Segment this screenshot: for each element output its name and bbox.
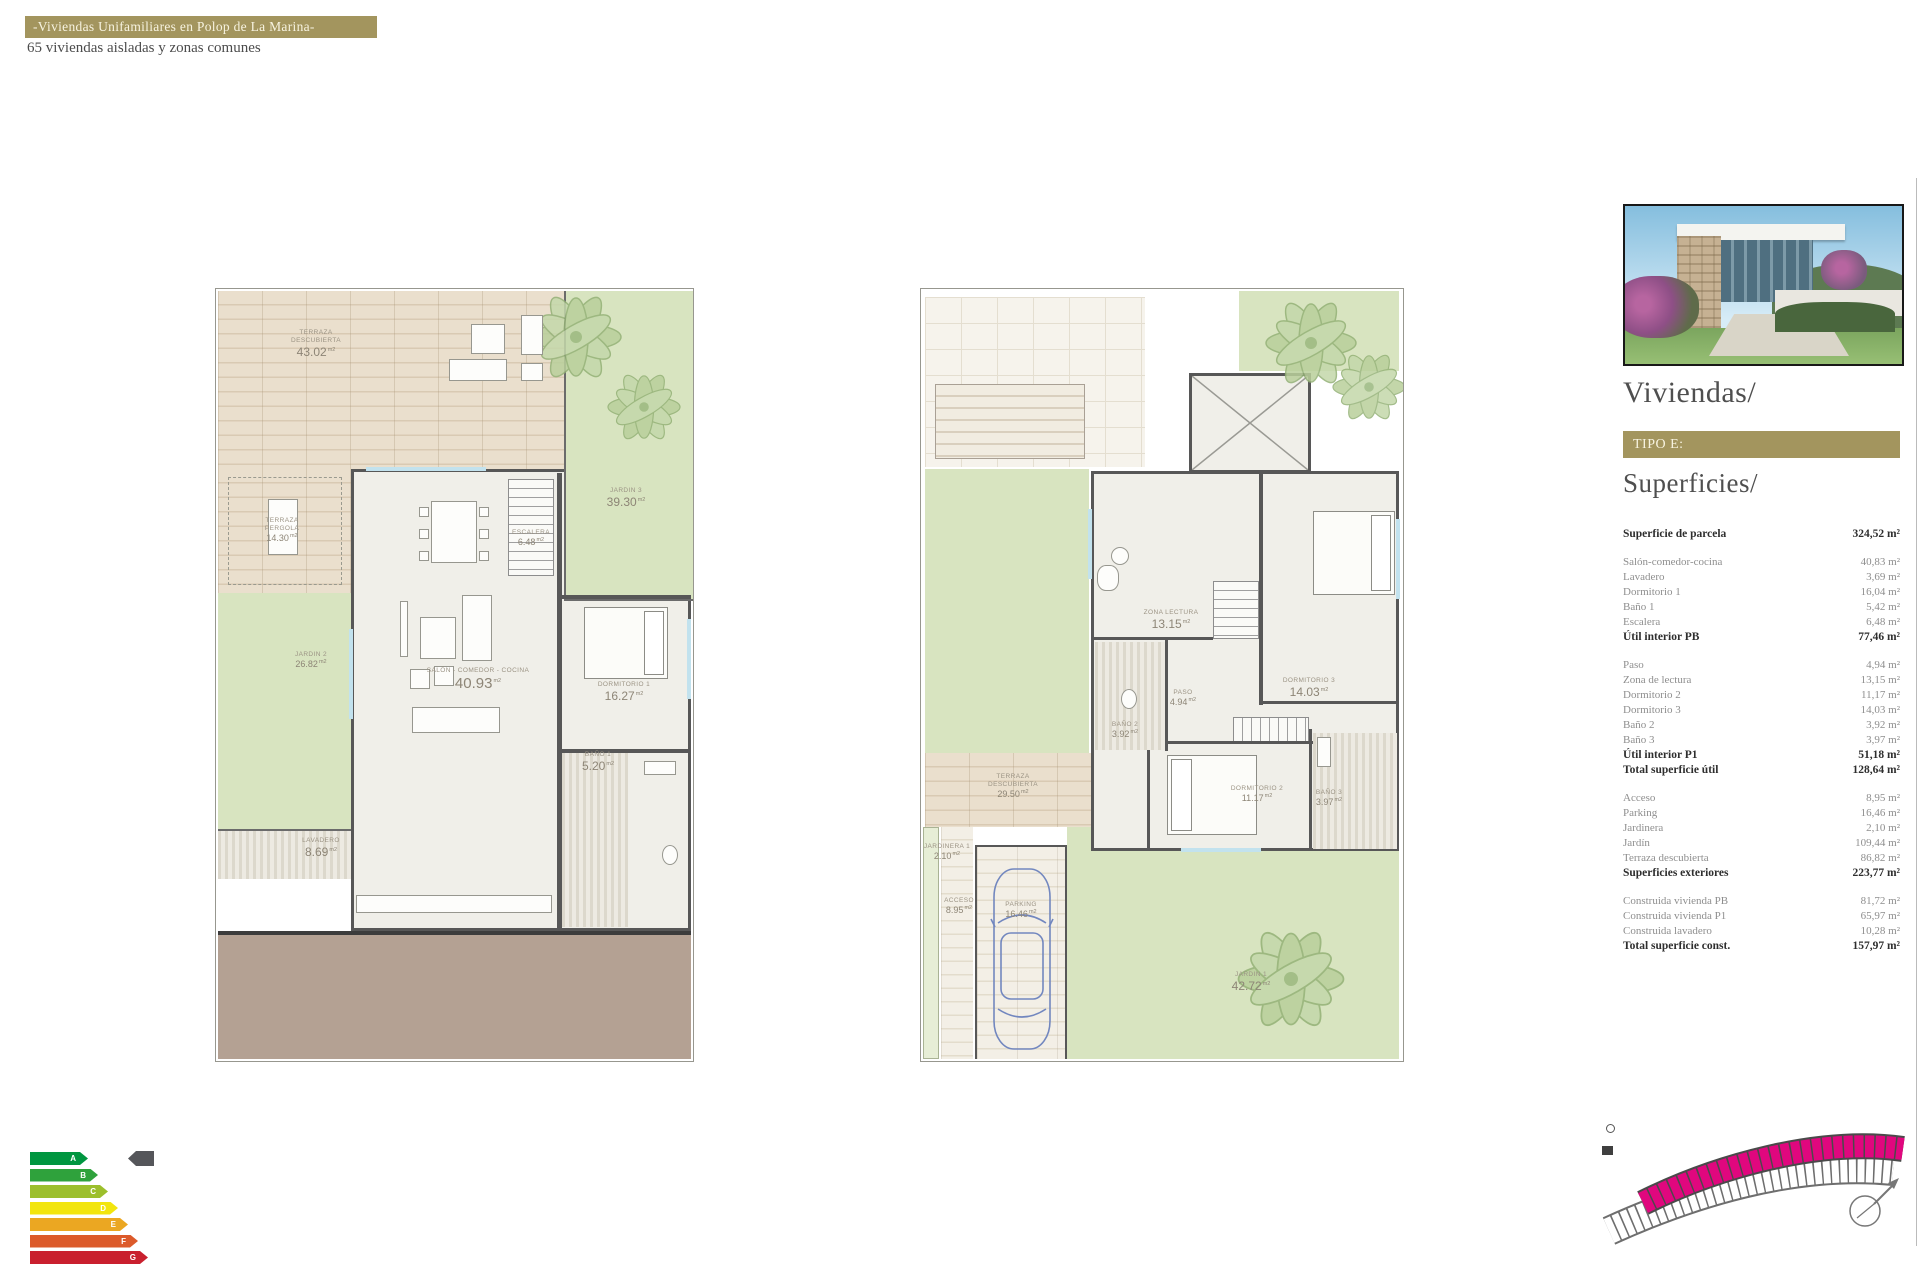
room-label: BAÑO 2 3.92m2 xyxy=(1097,721,1153,740)
surface-row: Parking16,46 m² xyxy=(1623,806,1900,821)
surface-row: Baño 23,92 m² xyxy=(1623,718,1900,733)
room-label: JARDIN 3 39.30m2 xyxy=(586,487,666,510)
armchair xyxy=(420,617,456,659)
room-label: PASO 4.94m2 xyxy=(1153,689,1213,708)
site-plan-marker xyxy=(1602,1146,1613,1155)
bed xyxy=(1313,511,1395,595)
energy-level-A: A xyxy=(30,1152,88,1165)
window xyxy=(1396,519,1400,599)
header-title-band: -Viviendas Unifamiliares en Polop de La … xyxy=(25,16,377,38)
room-label: TERRAZA DESCUBIERTA 43.02m2 xyxy=(274,329,358,360)
furniture xyxy=(471,324,505,354)
surface-row: Dormitorio 116,04 m² xyxy=(1623,585,1900,600)
window xyxy=(687,619,691,699)
surface-row: Construida vivienda PB81,72 m² xyxy=(1623,894,1900,909)
chair xyxy=(419,551,429,561)
shower xyxy=(1317,737,1331,767)
kitchen-counter xyxy=(356,895,552,913)
surfaces-title: Superficies/ xyxy=(1623,468,1758,499)
energy-level-E: E xyxy=(30,1218,128,1231)
toilet xyxy=(662,845,678,865)
room-label: TERRAZA PERGOLA 14.30m2 xyxy=(249,517,315,545)
dining-table xyxy=(431,501,477,563)
room-label: SALÓN - COMEDOR - COCINA 40.93m2 xyxy=(413,667,543,694)
sidebar-title: Viviendas/ xyxy=(1623,376,1756,410)
chair xyxy=(479,507,489,517)
site-plan-marker xyxy=(1606,1124,1615,1133)
wall xyxy=(1147,741,1313,744)
surface-row: Baño 33,97 m² xyxy=(1623,733,1900,748)
photo-bougainvillea xyxy=(1821,250,1867,290)
surface-row: Lavadero3,69 m² xyxy=(1623,570,1900,585)
surface-row: Baño 15,42 m² xyxy=(1623,600,1900,615)
room-label: PARKING 16.46m2 xyxy=(988,901,1054,920)
surface-row: Superficie de parcela324,52 m² xyxy=(1623,527,1900,542)
surfaces-table: Superficie de parcela324,52 m²Salón-come… xyxy=(1623,527,1900,967)
surface-row: Útil interior PB77,46 m² xyxy=(1623,630,1900,645)
kitchen-island xyxy=(412,707,500,733)
room-label: JARDIN 1 42.72m2 xyxy=(1216,971,1286,994)
energy-efficiency-label: ABCDEFG xyxy=(30,1152,230,1268)
chair xyxy=(479,551,489,561)
furniture xyxy=(521,363,543,381)
car-icon xyxy=(979,861,1065,1057)
chair xyxy=(419,507,429,517)
wall xyxy=(1261,701,1399,704)
palm-tree-icon xyxy=(1321,339,1404,435)
chair xyxy=(479,529,489,539)
furniture xyxy=(449,359,507,381)
room-label: JARDINERA 1 2.10m2 xyxy=(920,843,975,862)
window xyxy=(366,467,486,471)
sofa xyxy=(462,595,492,661)
room-label: LAVADERO 8.69m2 xyxy=(286,837,356,860)
tipo-band: TIPO E: xyxy=(1623,431,1900,458)
room-label: BAÑO 3 3.97m2 xyxy=(1301,789,1357,808)
room-label: BAÑO 1 5.20m2 xyxy=(568,751,628,774)
bed xyxy=(584,607,668,679)
villa-photo xyxy=(1623,204,1904,366)
first-pergola-slats xyxy=(935,384,1085,459)
wall xyxy=(1147,741,1150,851)
furniture xyxy=(521,315,543,355)
brochure-page: -Viviendas Unifamiliares en Polop de La … xyxy=(0,0,1920,1280)
surface-row: Dormitorio 314,03 m² xyxy=(1623,703,1900,718)
first-stairs xyxy=(1213,581,1259,639)
surface-row: Superficies exteriores223,77 m² xyxy=(1623,866,1900,881)
palm-tree-icon xyxy=(596,359,692,455)
room-label: TERRAZA DESCUBIERTA 29.50m2 xyxy=(978,773,1048,801)
window xyxy=(1181,848,1261,852)
vanity xyxy=(644,761,676,775)
room-label: DORMITORIO 2 11.17m2 xyxy=(1215,785,1299,804)
energy-level-F: F xyxy=(30,1235,138,1248)
surface-row: Paso4,94 m² xyxy=(1623,658,1900,673)
energy-indicator-arrow xyxy=(128,1151,154,1166)
room-label: ZONA LECTURA 13.15m2 xyxy=(1131,609,1211,632)
ground-bath-floor xyxy=(562,753,628,927)
window xyxy=(349,629,353,719)
chair xyxy=(419,529,429,539)
reading-chair xyxy=(1111,547,1129,565)
tv-unit xyxy=(400,601,408,657)
surface-row: Terraza descubierta86,82 m² xyxy=(1623,851,1900,866)
reading-chair xyxy=(1097,565,1119,591)
surface-row: Construida vivienda P165,97 m² xyxy=(1623,909,1900,924)
surface-row: Zona de lectura13,15 m² xyxy=(1623,673,1900,688)
wall xyxy=(1093,637,1213,640)
first-hall-stairs xyxy=(1233,717,1309,743)
energy-level-C: C xyxy=(30,1185,108,1198)
surface-row: Salón-comedor-cocina40,83 m² xyxy=(1623,555,1900,570)
room-label: DORMITORIO 1 16.27m2 xyxy=(582,681,666,704)
room-label: JARDIN 2 26.82m2 xyxy=(276,651,346,670)
floor-plan-ground: TERRAZA DESCUBIERTA 43.02m2 JARDIN 3 39.… xyxy=(215,288,694,1062)
site-plan xyxy=(1593,1083,1920,1251)
energy-level-D: D xyxy=(30,1202,118,1215)
surface-row: Útil interior P151,18 m² xyxy=(1623,748,1900,763)
surface-row: Total superficie const.157,97 m² xyxy=(1623,939,1900,954)
surface-row: Escalera6,48 m² xyxy=(1623,615,1900,630)
toilet xyxy=(1121,689,1137,709)
ground-stairs xyxy=(508,479,554,576)
room-label: ACCESO 8.95m2 xyxy=(931,897,987,916)
surface-row: Dormitorio 211,17 m² xyxy=(1623,688,1900,703)
surface-row: Acceso8,95 m² xyxy=(1623,791,1900,806)
surface-row: Jardinera2,10 m² xyxy=(1623,821,1900,836)
room-label: DORMITORIO 3 14.03m2 xyxy=(1267,677,1351,700)
energy-level-G: G xyxy=(30,1251,148,1264)
surface-row: Jardín109,44 m² xyxy=(1623,836,1900,851)
photo-bougainvillea xyxy=(1623,276,1699,338)
surface-row: Construida lavadero10,28 m² xyxy=(1623,924,1900,939)
energy-level-B: B xyxy=(30,1169,98,1182)
window xyxy=(1088,509,1092,579)
first-garden-left xyxy=(925,469,1089,753)
photo-hedge xyxy=(1775,302,1895,332)
wall xyxy=(1259,473,1263,705)
room-label: ESCALERA 6.48m2 xyxy=(501,529,561,548)
ground-street xyxy=(218,931,691,1059)
header-subtitle: 65 viviendas aisladas y zonas comunes xyxy=(27,40,261,57)
surface-row: Total superficie útil128,64 m² xyxy=(1623,763,1900,778)
floor-plan-first: ZONA LECTURA 13.15m2 PASO 4.94m2 DORMITO… xyxy=(920,288,1404,1062)
wall xyxy=(557,595,691,599)
ground-terrace-deck xyxy=(218,291,564,469)
north-arrow-icon xyxy=(1850,1178,1899,1226)
